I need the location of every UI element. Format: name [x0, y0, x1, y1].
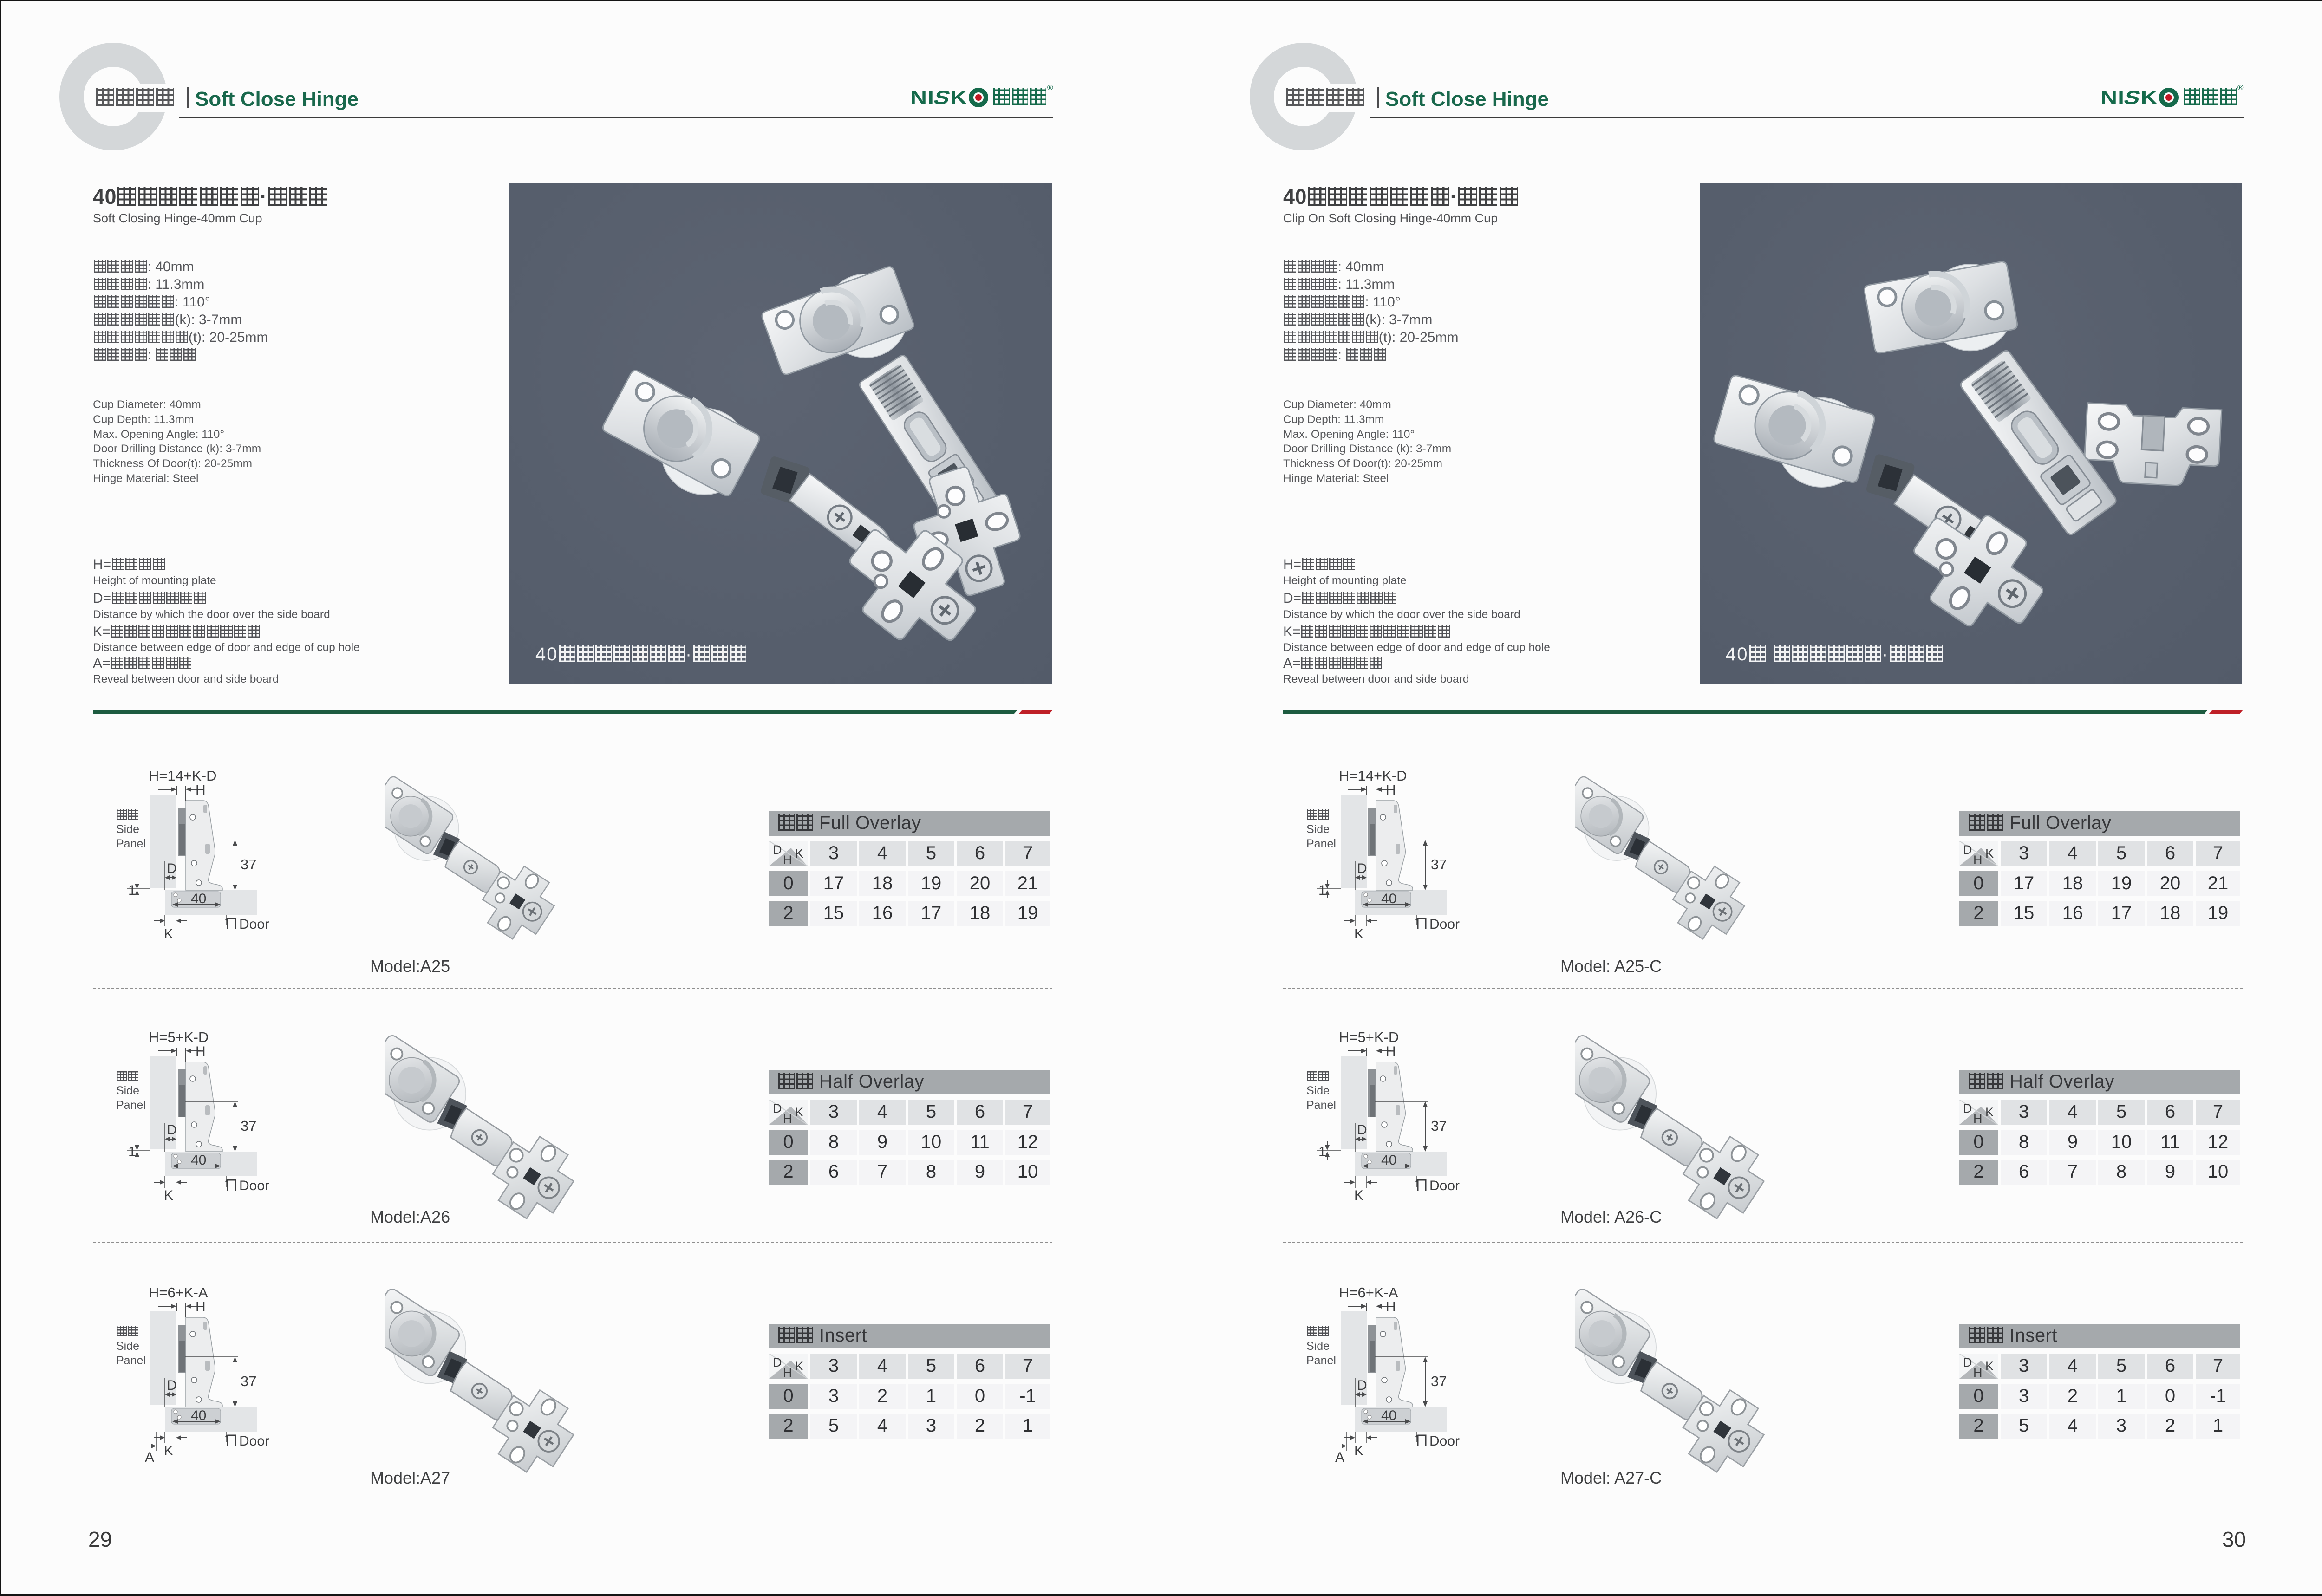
svg-text:37: 37 [241, 1373, 256, 1389]
svg-text:H: H [1973, 1366, 1983, 1379]
svg-text:K: K [795, 1105, 803, 1119]
svg-text:Door: Door [1429, 1178, 1460, 1193]
svg-text:D: D [167, 861, 177, 876]
svg-text:H: H [1973, 1112, 1983, 1125]
svg-text:H: H [783, 1112, 792, 1125]
svg-text:D: D [1963, 1355, 1972, 1369]
svg-text:H=14+K-D: H=14+K-D [149, 768, 216, 784]
svg-text:D: D [1963, 843, 1972, 857]
svg-text:37: 37 [1431, 1118, 1447, 1134]
svg-text:H: H [1386, 782, 1396, 798]
svg-text:H: H [196, 782, 206, 798]
svg-text:Door: Door [239, 1433, 269, 1449]
svg-text:Door: Door [239, 1178, 269, 1193]
svg-text:D: D [773, 1101, 782, 1115]
svg-text:D: D [773, 843, 782, 857]
svg-text:1: 1 [128, 883, 136, 898]
svg-text:K: K [1354, 1188, 1363, 1203]
svg-text:D: D [1357, 861, 1367, 876]
svg-text:K: K [164, 1188, 173, 1203]
svg-text:37: 37 [241, 856, 256, 873]
svg-text:D: D [773, 1355, 782, 1369]
svg-text:A: A [145, 1450, 154, 1465]
svg-text:K: K [1985, 1359, 1994, 1373]
svg-text:37: 37 [1431, 856, 1447, 873]
svg-text:37: 37 [1431, 1373, 1447, 1389]
svg-text:Door: Door [1429, 917, 1460, 932]
svg-text:1: 1 [1318, 1144, 1326, 1160]
svg-text:H: H [783, 853, 792, 866]
svg-text:K: K [1354, 926, 1363, 942]
svg-text:H: H [196, 1299, 206, 1315]
svg-text:K: K [1354, 1443, 1363, 1459]
svg-text:K: K [164, 926, 173, 942]
svg-text:K: K [795, 1359, 803, 1373]
svg-text:K: K [1985, 1105, 1994, 1119]
svg-text:H=6+K-A: H=6+K-A [149, 1284, 208, 1301]
svg-text:A: A [1335, 1450, 1344, 1465]
svg-text:H=5+K-D: H=5+K-D [1339, 1029, 1399, 1045]
svg-text:D: D [167, 1378, 177, 1393]
svg-text:H: H [1386, 1299, 1396, 1315]
svg-text:K: K [795, 847, 803, 860]
svg-text:H: H [1386, 1044, 1396, 1059]
svg-text:H: H [1973, 853, 1983, 866]
svg-text:H: H [196, 1044, 206, 1059]
svg-text:K: K [1985, 847, 1994, 860]
svg-text:1: 1 [1318, 883, 1326, 898]
svg-text:H: H [783, 1366, 792, 1379]
svg-text:H=14+K-D: H=14+K-D [1339, 768, 1407, 784]
svg-text:37: 37 [241, 1118, 256, 1134]
svg-text:H=6+K-A: H=6+K-A [1339, 1284, 1398, 1301]
svg-text:D: D [1357, 1378, 1367, 1393]
svg-text:K: K [164, 1443, 173, 1459]
svg-text:1: 1 [128, 1144, 136, 1160]
svg-text:Door: Door [239, 917, 269, 932]
svg-text:Door: Door [1429, 1433, 1460, 1449]
svg-text:D: D [1357, 1122, 1367, 1138]
svg-text:D: D [1963, 1101, 1972, 1115]
svg-text:D: D [167, 1122, 177, 1138]
svg-text:H=5+K-D: H=5+K-D [149, 1029, 209, 1045]
